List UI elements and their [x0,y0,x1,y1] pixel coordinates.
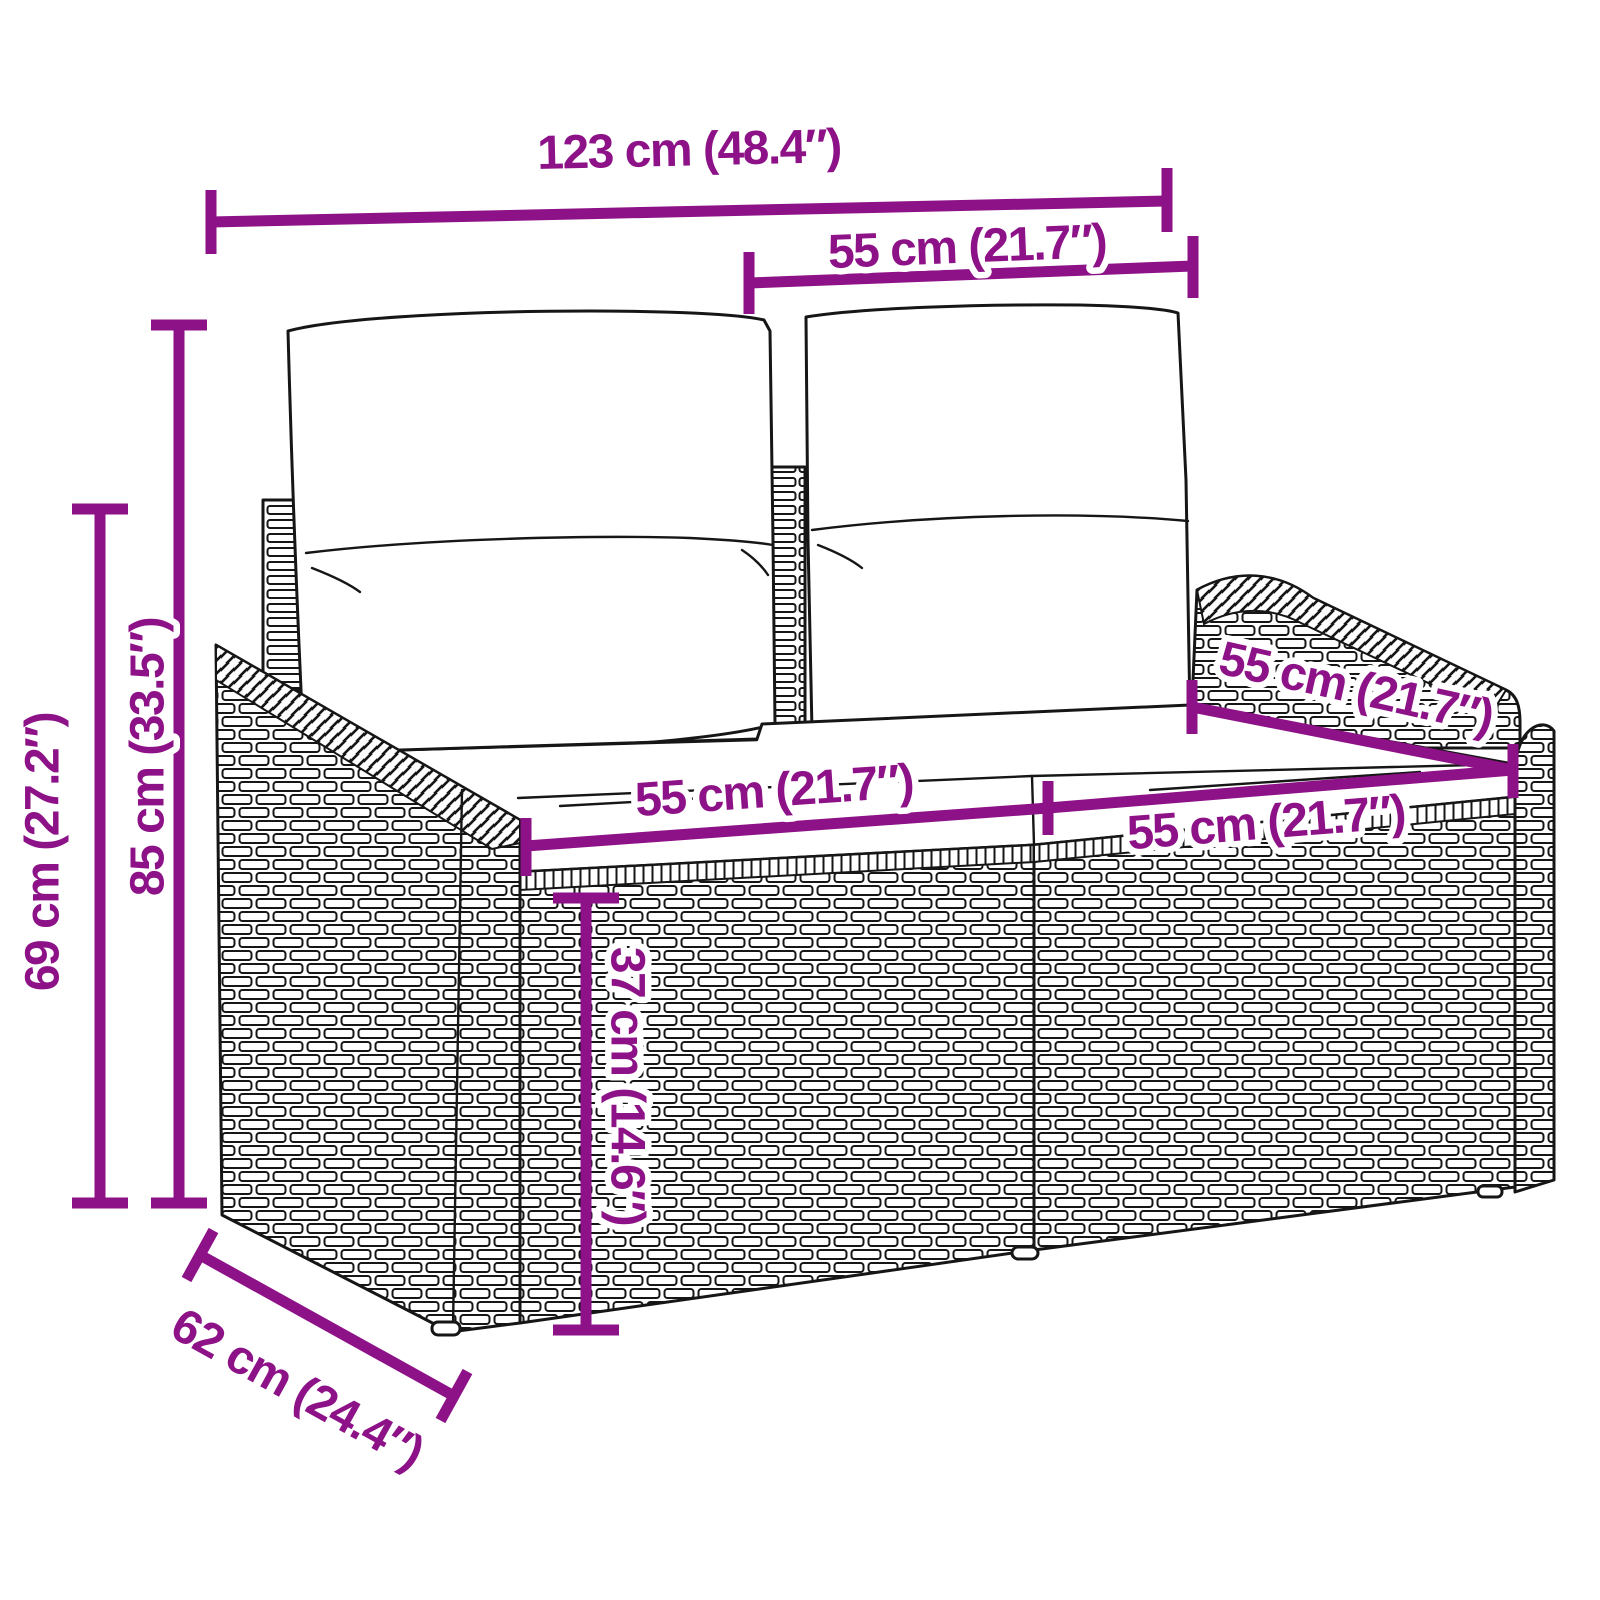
dim-backrest-width: 55 cm (21.7″) [749,215,1193,314]
back-cushion-left [288,311,775,754]
dim-overall-width-label: 123 cm (48.4″) [537,120,842,180]
garden-sofa-dimension-diagram: 123 cm (48.4″) 55 cm (21.7″) 85 cm (33.5… [0,0,1600,1600]
dim-side-height-label: 69 cm (27.2″) [17,713,70,991]
dim-seat-height-label: 37 cm (14.6″) [601,947,654,1225]
dim-backrest-width-label: 55 cm (21.7″) [827,215,1107,279]
seat-box-left [520,845,1034,1323]
dim-total-height: 85 cm (33.5″) [122,325,208,1203]
back-cushion-right [806,305,1190,740]
dim-total-height-label: 85 cm (33.5″) [122,618,175,896]
dim-overall-depth-label: 62 cm (24.4″) [162,1298,431,1479]
dimension-diagram-canvas: 123 cm (48.4″) 55 cm (21.7″) 85 cm (33.5… [0,0,1600,1600]
dim-side-height: 69 cm (27.2″) [17,509,129,1203]
seat-box-right [1034,797,1515,1250]
armrest-right [1515,725,1554,1192]
